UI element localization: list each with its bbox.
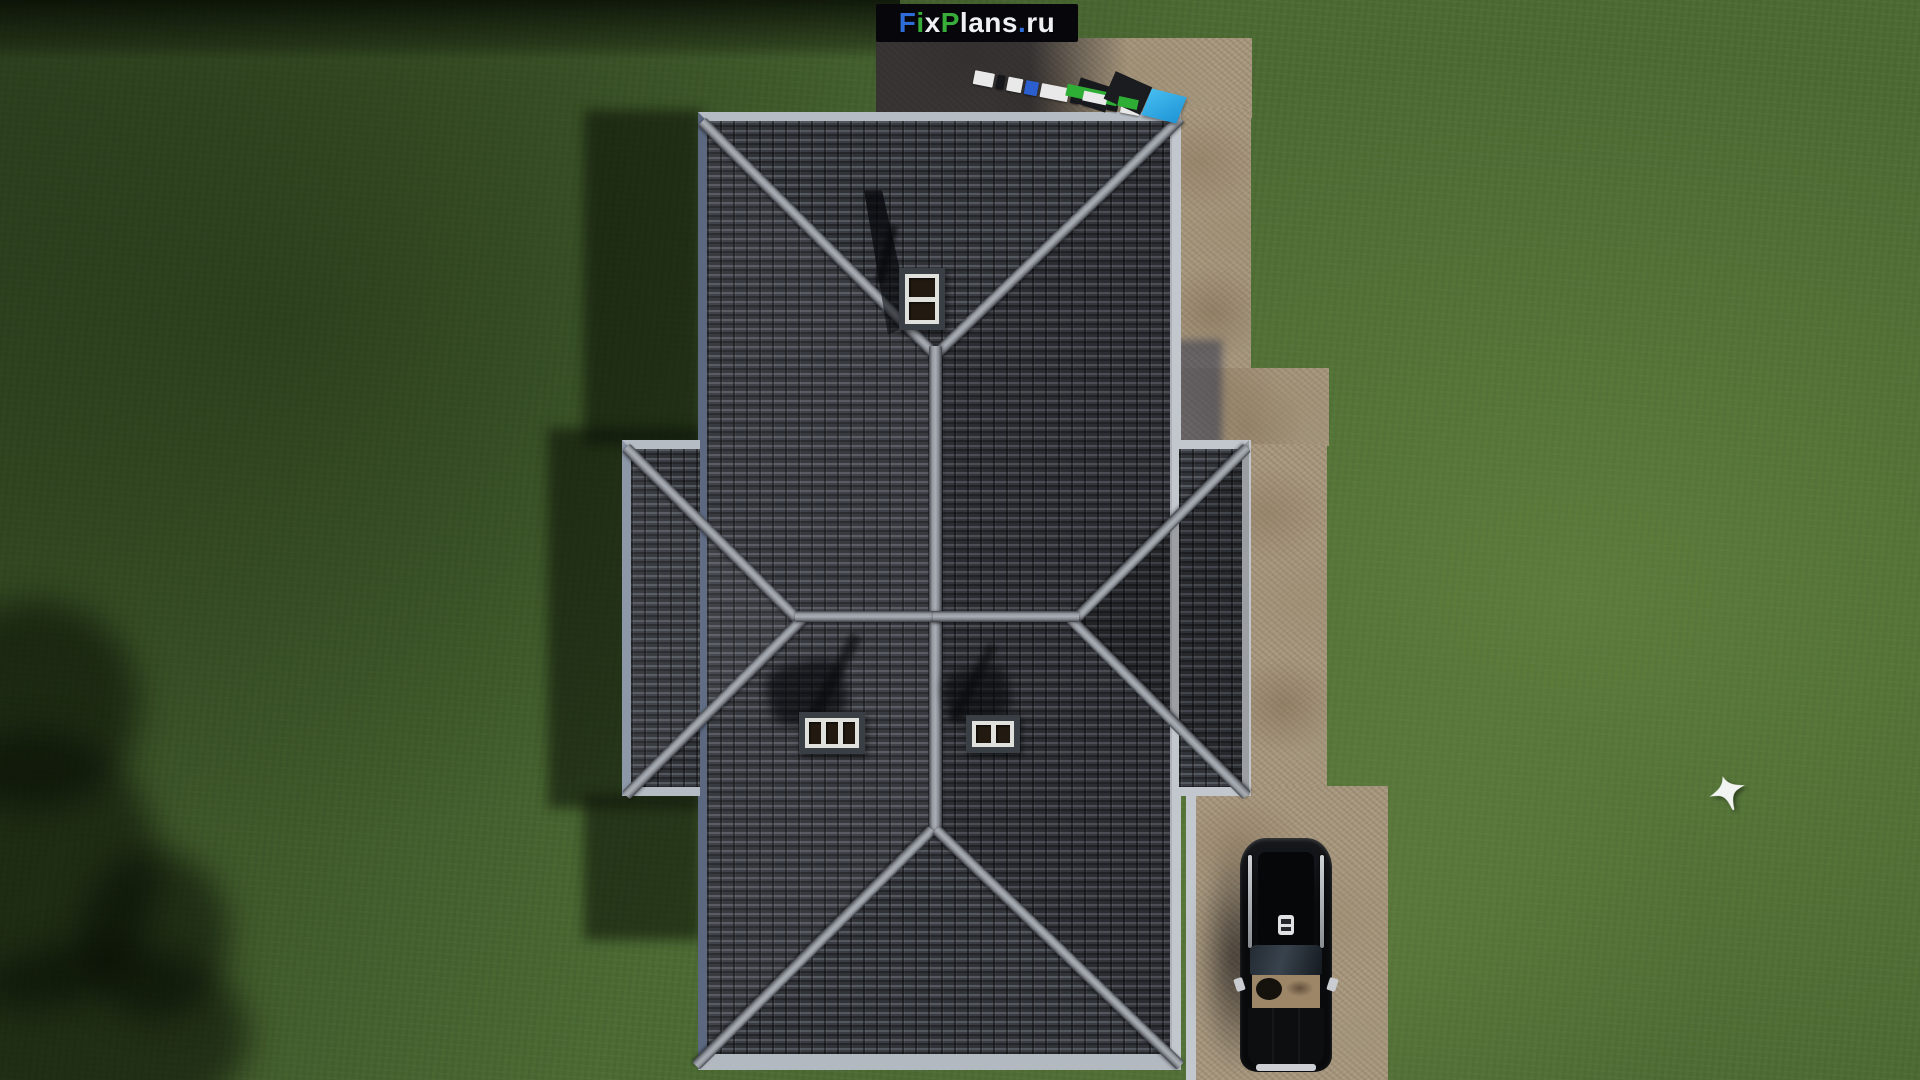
car-windshield: [1250, 945, 1322, 975]
chimney-flue-hole: [809, 722, 821, 744]
roof-wing-left: [622, 440, 700, 796]
scale-bar-segment: [1023, 80, 1038, 96]
scale-bar-segment: [1006, 77, 1023, 94]
watermark-letter: .: [1018, 9, 1026, 37]
watermark-letter: x: [925, 9, 941, 37]
center-ridge: [929, 346, 942, 834]
chimney-top: [899, 268, 945, 330]
car-hood: [1248, 1008, 1324, 1066]
chimney-mid-right: [966, 715, 1020, 753]
watermark-letter: P: [941, 9, 960, 37]
car-steering-wheel: [1256, 978, 1282, 1000]
watermark-letter: lans: [960, 9, 1018, 37]
watermark-letter: F: [899, 9, 917, 37]
car-roof-emblem: [1278, 915, 1294, 935]
house-shadow: [584, 795, 702, 940]
car-roof-rail-right: [1320, 855, 1324, 948]
fixplans-watermark: FixPlans.ru: [876, 4, 1078, 42]
car-roof-rail-left: [1248, 855, 1252, 948]
chimney-flue-hole: [909, 278, 935, 297]
chimney-flue-hole: [826, 722, 838, 744]
tree-shadow: [80, 850, 230, 1020]
scale-bar-segment: [996, 75, 1006, 90]
car: [1236, 836, 1336, 1076]
aerial-roof-render: FixPlans.ru: [0, 0, 1920, 1080]
chimney-flue-hole: [996, 725, 1011, 743]
wing-right-ridge: [933, 611, 1079, 622]
watermark-letter: i: [916, 9, 924, 37]
pavement-east-strip: [1247, 444, 1327, 792]
house-shadow: [584, 110, 702, 445]
watermark-letter: ru: [1026, 9, 1055, 37]
chimney-flue-hole: [909, 302, 935, 321]
car-front-bumper: [1256, 1064, 1316, 1071]
chimney-flue-hole: [976, 725, 991, 743]
wing-left-ridge: [795, 611, 941, 622]
chimney-flue-hole: [843, 722, 855, 744]
grass-top-shadow-strip: [0, 0, 900, 60]
chimney-mid-left: [799, 712, 865, 754]
